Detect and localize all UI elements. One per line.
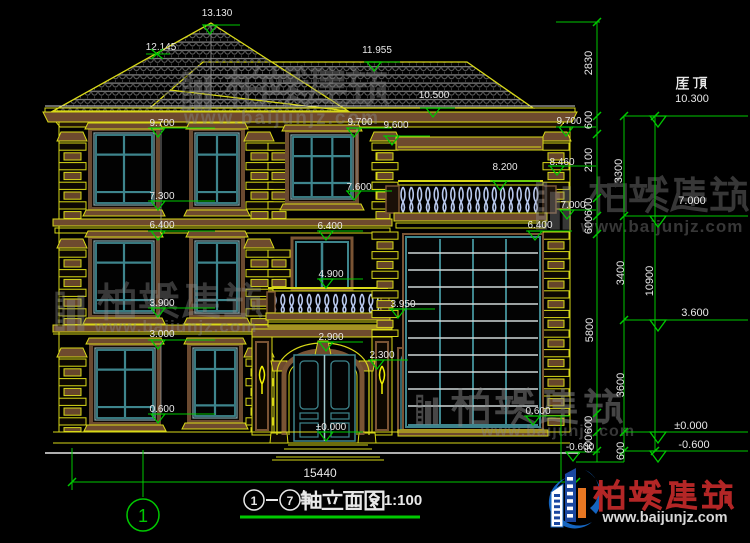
svg-text:3.000: 3.000 (149, 329, 174, 340)
svg-text:600: 600 (583, 416, 595, 434)
svg-text:0.600: 0.600 (149, 404, 174, 415)
svg-text:www.baijunjz.com: www.baijunjz.com (480, 423, 635, 440)
svg-text:±0.000: ±0.000 (316, 422, 347, 433)
svg-text:9.700: 9.700 (556, 116, 581, 127)
svg-text:15440: 15440 (303, 466, 337, 480)
svg-text:www.baijunjz.com: www.baijunjz.com (601, 510, 727, 526)
svg-text:8.460: 8.460 (549, 157, 574, 168)
svg-text:3300: 3300 (613, 159, 625, 183)
svg-text:3600: 3600 (615, 373, 627, 397)
svg-text:10.300: 10.300 (675, 93, 709, 105)
svg-text:9.700: 9.700 (149, 118, 174, 129)
svg-text:11.955: 11.955 (362, 45, 392, 56)
svg-text:7.600: 7.600 (346, 182, 371, 193)
svg-text:-0.600: -0.600 (678, 439, 709, 451)
svg-text:9.600: 9.600 (383, 120, 408, 131)
svg-text:www.baijunjz.com: www.baijunjz.com (580, 217, 744, 236)
svg-text:6.400: 6.400 (149, 220, 174, 231)
svg-text:2100: 2100 (583, 148, 595, 172)
svg-text:3.950: 3.950 (390, 299, 415, 310)
svg-text:4.900: 4.900 (318, 269, 343, 280)
svg-text:10.500: 10.500 (419, 90, 450, 101)
svg-text:1:100: 1:100 (384, 492, 422, 509)
svg-text:600: 600 (583, 435, 595, 453)
svg-text:10900: 10900 (644, 266, 656, 297)
svg-text:3.600: 3.600 (681, 307, 709, 319)
svg-text:600: 600 (583, 111, 595, 129)
svg-text:2.900: 2.900 (318, 332, 343, 343)
svg-text:6.400: 6.400 (317, 221, 342, 232)
svg-text:www.baijunjz.com: www.baijunjz.com (94, 317, 258, 336)
svg-text:0.600: 0.600 (525, 406, 550, 417)
svg-text:9.700: 9.700 (347, 117, 372, 128)
svg-text:1: 1 (251, 494, 258, 508)
svg-text:5800: 5800 (584, 318, 596, 342)
svg-text:1: 1 (138, 506, 148, 526)
svg-text:2.300: 2.300 (369, 350, 394, 361)
svg-text:8.200: 8.200 (492, 162, 517, 173)
svg-text:3.900: 3.900 (149, 298, 174, 309)
svg-text:3400: 3400 (615, 261, 627, 285)
svg-text:13.130: 13.130 (202, 8, 233, 19)
svg-text:6.400: 6.400 (527, 220, 552, 231)
svg-text:±0.000: ±0.000 (674, 420, 708, 432)
svg-text:7: 7 (287, 494, 294, 508)
svg-text:600: 600 (583, 216, 595, 234)
svg-text:7.300: 7.300 (149, 191, 174, 202)
svg-text:600: 600 (583, 198, 595, 216)
svg-text:7.000: 7.000 (678, 195, 706, 207)
svg-text:2830: 2830 (583, 51, 595, 75)
